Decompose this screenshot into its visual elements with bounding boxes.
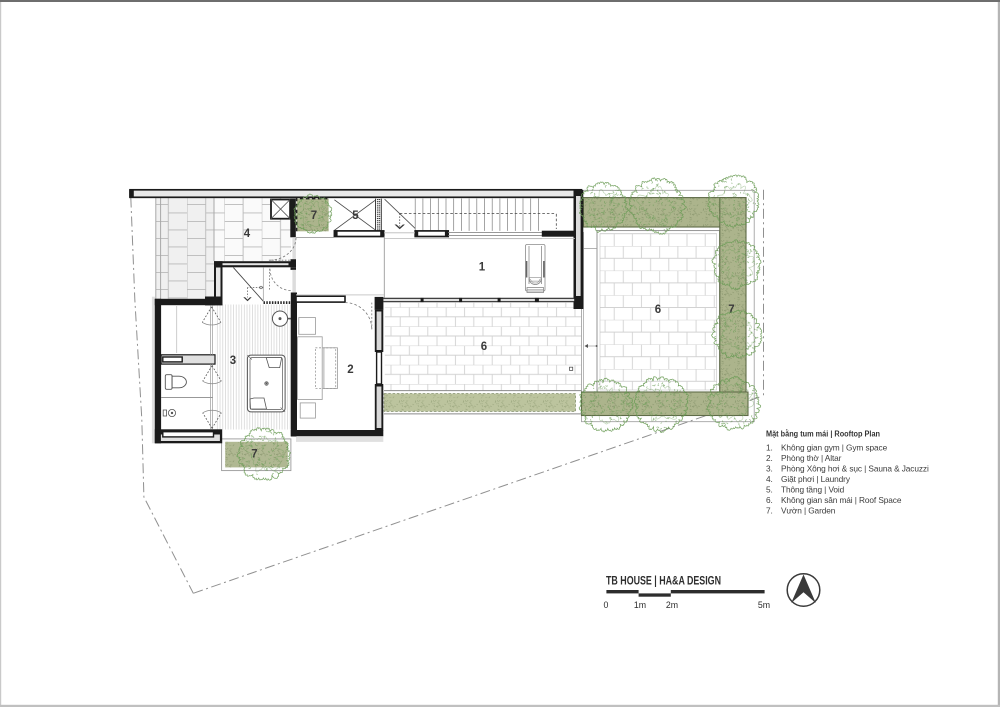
svg-text:1.: 1.	[766, 443, 773, 453]
svg-text:2m: 2m	[666, 600, 678, 610]
svg-text:6.: 6.	[766, 495, 773, 505]
svg-text:Phòng Xông hơi & sục | Sauna: Phòng Xông hơi & sục | Sauna & Jacuzzi	[781, 464, 929, 474]
svg-text:Giặt phơi | Laundry: Giặt phơi | Laundry	[781, 474, 851, 484]
svg-text:3.: 3.	[766, 464, 773, 474]
svg-text:Không gian gym | Gym space: Không gian gym | Gym space	[781, 443, 888, 453]
svg-text:6: 6	[481, 341, 487, 353]
svg-text:1m: 1m	[634, 600, 646, 610]
svg-text:4.: 4.	[766, 474, 773, 484]
svg-text:2.: 2.	[766, 453, 773, 463]
svg-text:4: 4	[244, 228, 251, 240]
svg-text:1: 1	[479, 262, 486, 274]
svg-text:Không gian sân mái | Roof Spa: Không gian sân mái | Roof Space	[781, 495, 902, 505]
svg-text:5.: 5.	[766, 485, 773, 495]
svg-text:Thông tầng | Void: Thông tầng | Void	[781, 485, 845, 495]
svg-text:7: 7	[311, 210, 317, 222]
svg-text:Phòng thờ | Altar: Phòng thờ | Altar	[781, 453, 842, 463]
svg-text:0: 0	[604, 600, 609, 610]
svg-text:Vườn | Garden: Vườn | Garden	[781, 506, 836, 516]
svg-text:5m: 5m	[758, 600, 770, 610]
svg-text:7: 7	[728, 304, 734, 316]
svg-text:5: 5	[352, 210, 359, 222]
svg-text:Mặt bằng tum mái | Rooftop Pl: Mặt bằng tum mái | Rooftop Plan	[766, 428, 880, 439]
svg-text:7.: 7.	[766, 506, 773, 516]
svg-text:6: 6	[655, 304, 661, 316]
svg-text:2: 2	[347, 364, 353, 376]
svg-text:3: 3	[230, 355, 236, 367]
svg-text:TB HOUSE | HA&A DESIGN: TB HOUSE | HA&A DESIGN	[606, 574, 721, 588]
